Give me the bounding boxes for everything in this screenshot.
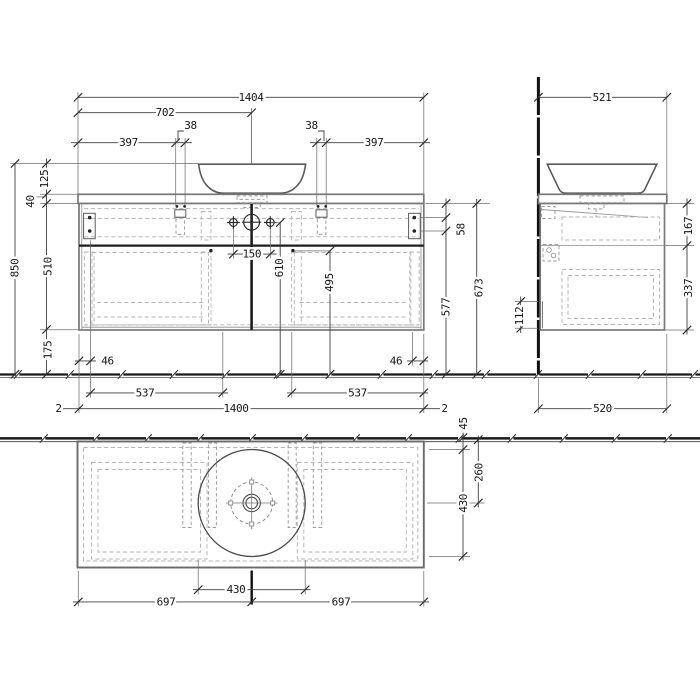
dim-bracket-drop: 58 (455, 223, 468, 235)
dim-basin-width: 430 (227, 583, 246, 596)
dim-hanger-height: 577 (440, 298, 453, 317)
dim-left-offset: 397 (119, 136, 138, 149)
dim-divider-height: 495 (323, 273, 336, 292)
side-view: 521 167 337 112 520 (513, 77, 695, 415)
dim-inset-right: 46 (390, 354, 402, 367)
dim-overhang-left: 2 (55, 402, 61, 415)
countertop-side (538, 194, 666, 203)
dim-drawer-width-right: 537 (348, 386, 367, 399)
plan-view: 45 260 430 430 697 697 (73, 417, 486, 608)
dim-cabinet-height: 510 (41, 257, 54, 276)
basin-side (547, 164, 657, 193)
dim-countertop-depth: 521 (593, 91, 612, 104)
dim-basin-center-from-rear: 260 (473, 463, 486, 482)
cabinet-side (540, 204, 664, 331)
dim-rear-cutout: 112 (513, 307, 526, 326)
dim-bracket-right: 38 (305, 119, 317, 132)
drawing-svg: 1404 702 397 38 38 397 850 125 40 510 17… (0, 0, 700, 700)
dim-tap-hole-height: 610 (273, 259, 286, 278)
technical-drawing-canvas: 1404 702 397 38 38 397 850 125 40 510 17… (0, 0, 700, 700)
dim-countertop-width: 1404 (239, 91, 265, 104)
dim-bracket-left: 38 (184, 119, 196, 132)
dim-left-span: 697 (157, 595, 176, 608)
dim-drawer-width-left: 537 (136, 386, 155, 399)
dim-cabinet-width: 1400 (224, 402, 249, 415)
dim-upper-section: 167 (682, 217, 695, 236)
dim-tap-hole-spacing: 150 (242, 248, 261, 261)
dim-cabinet-depth: 520 (593, 402, 612, 415)
basin-front (199, 164, 306, 193)
dim-overall-height: 850 (9, 259, 22, 278)
wall-section-line (0, 370, 700, 378)
dim-overhang-right: 2 (441, 402, 447, 415)
dim-carcass-top-height: 673 (472, 279, 485, 298)
dim-center-offset: 702 (156, 106, 175, 119)
dim-basin-depth: 430 (457, 494, 470, 513)
dim-basin-rear-gap: 45 (457, 417, 470, 429)
dim-basin-height: 125 (38, 170, 51, 189)
dim-lower-clearance: 175 (41, 341, 54, 360)
dim-countertop-thickness: 40 (24, 195, 37, 207)
dim-lower-section: 337 (682, 279, 695, 298)
dim-right-span: 697 (332, 595, 351, 608)
front-view: 1404 702 397 38 38 397 850 125 40 510 17… (9, 91, 491, 415)
dim-right-offset: 397 (365, 136, 384, 149)
dim-inset-left: 46 (101, 354, 113, 367)
leader-38 (178, 131, 324, 141)
